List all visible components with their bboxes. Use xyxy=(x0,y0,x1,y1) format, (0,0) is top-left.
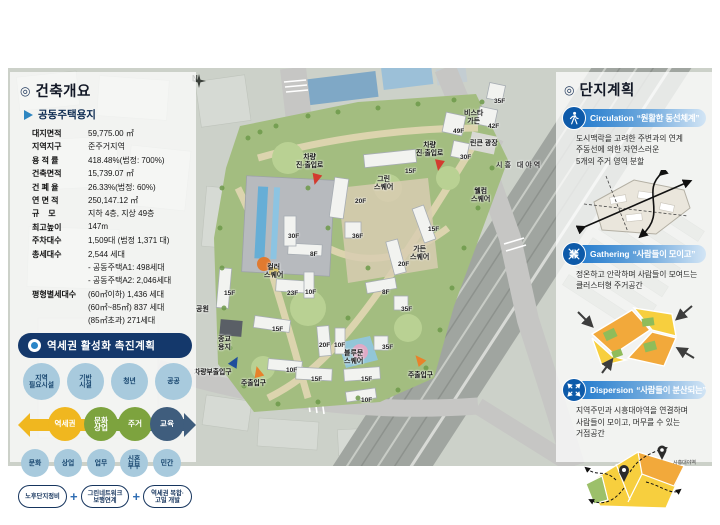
floor-label: 15F xyxy=(224,290,235,297)
floor-label: 30F xyxy=(460,154,471,161)
keyword-bubble: 상업 xyxy=(54,449,82,477)
row-label xyxy=(32,275,88,286)
flow-step: 교육 xyxy=(150,407,184,441)
floor-label: 36F xyxy=(352,233,363,240)
keyword-bubble: 지역 필요시설 xyxy=(23,363,60,400)
slide: N 49F42F35F30F15F20F36F30F8F15F20F15F23F… xyxy=(0,0,720,525)
place-label: 블루문 스퀘어 xyxy=(344,350,363,366)
floor-label: 20F xyxy=(319,342,330,349)
row-value: (60㎡~85㎡) 837 세대 xyxy=(88,302,192,313)
complex-plan-panel: ◎ 단지계획 Circulation “원활한 동선체계” 도시맥락을 고려한 … xyxy=(556,72,712,462)
row-label: 지역지구 xyxy=(32,141,88,152)
triangle-bullet-icon xyxy=(24,110,33,120)
row-label: 대지면적 xyxy=(32,128,88,139)
table-row: 용 적 률 418.48%(법정: 700%) xyxy=(32,155,192,166)
circulation-text: 도시맥락을 고려한 주변과의 연계 주동선에 의한 자연스러운 5개의 주거 영… xyxy=(576,133,706,167)
circulation-diagram xyxy=(572,170,698,238)
entrance-label: 차량부출입구 xyxy=(194,369,232,377)
floor-label: 42F xyxy=(488,123,499,130)
floor-label: 30F xyxy=(288,233,299,240)
gathering-pill: Gathering “사람들이 모이고” xyxy=(574,245,706,263)
row-label xyxy=(32,315,88,326)
row-label: 건 폐 율 xyxy=(32,182,88,193)
circulation-header: Circulation “원활한 동선체계” xyxy=(562,106,706,130)
top-bubbles: 지역 필요시설기반 시설청년공공 xyxy=(20,363,192,400)
gathering-text: 정온하고 안락하며 사람들이 모여드는 클러스터형 주거공간 xyxy=(576,269,706,292)
strategy-pill: 그린네트워크 보행연계 xyxy=(81,485,130,508)
floor-label: 20F xyxy=(355,198,366,205)
building-overview-panel: ◎ 건축개요 공동주택용지 대지면적 59,775.00 ㎡ 지역지구 준주거지… xyxy=(10,72,196,462)
dispersion-pill: Dispersion “사람들이 분산되는” xyxy=(574,381,706,399)
floor-label: 8F xyxy=(310,251,318,258)
row-label: 연 면 적 xyxy=(32,195,88,206)
row-label xyxy=(32,262,88,273)
overview-table: 대지면적 59,775.00 ㎡ 지역지구 준주거지역 용 적 률 418.48… xyxy=(18,128,192,326)
entrance-label: 주출입구 xyxy=(408,372,433,380)
table-row: 규 모 지하 4층, 지상 49층 xyxy=(32,208,192,219)
circulation-en: Circulation xyxy=(590,113,634,123)
keyword-bubble: 공공 xyxy=(155,363,192,400)
keyword-bubble: 업무 xyxy=(87,449,115,477)
table-row: - 공동주택A1: 498세대 xyxy=(32,262,192,273)
strategy-pill: 역세권 복합· 고밀 개발 xyxy=(143,485,192,508)
building-overview-header: ◎ 건축개요 xyxy=(20,80,192,101)
bottom-bubbles: 문화상업업무신혼 부부민간 xyxy=(20,449,192,477)
floor-label: 15F xyxy=(361,376,372,383)
place-label: 가든 스퀘어 xyxy=(410,246,429,262)
row-label: 평형별세대수 xyxy=(32,289,88,300)
flow-step: 주거 xyxy=(118,407,152,441)
dispersion-diagram: 시흥대야역 xyxy=(572,442,698,510)
place-label: 그린 스퀘어 xyxy=(374,176,393,192)
place-label: 시흥 대야역 xyxy=(496,162,542,170)
gathering-kr: “사람들이 모이고” xyxy=(633,248,696,260)
gathering-en: Gathering xyxy=(590,249,630,259)
text-line: 지역주민과 시흥대야역을 연결하며 xyxy=(576,405,706,416)
dispersion-text: 지역주민과 시흥대야역을 연결하며 사람들이 모이고, 머무를 수 있는 거점공… xyxy=(576,405,706,439)
plus-icon: + xyxy=(70,489,78,504)
row-label: 건축면적 xyxy=(32,168,88,179)
floor-label: 49F xyxy=(453,128,464,135)
row-label: 용 적 률 xyxy=(32,155,88,166)
row-value: 147m xyxy=(88,222,192,233)
walking-person-icon xyxy=(562,106,586,130)
table-row: 최고높이 147m xyxy=(32,222,192,233)
table-row: - 공동주택A2: 2,046세대 xyxy=(32,275,192,286)
text-line: 사람들이 모이고, 머무를 수 있는 xyxy=(576,417,706,428)
floor-label: 10F xyxy=(361,397,372,404)
row-value: (60㎡이하) 1,436 세대 xyxy=(88,289,192,300)
entrance-label: 주출입구 xyxy=(241,380,266,388)
row-value: 지하 4층, 지상 49층 xyxy=(88,208,192,219)
dispersion-en: Dispersion xyxy=(590,385,633,395)
row-label: 규 모 xyxy=(32,208,88,219)
table-row: 지역지구 준주거지역 xyxy=(32,141,192,152)
table-row: 건 폐 율 26.33%(법정: 60%) xyxy=(32,182,192,193)
text-line: 도시맥락을 고려한 주변과의 연계 xyxy=(576,133,706,144)
flow-diagram: 역세권문화 상업주거교육 xyxy=(18,403,192,447)
place-label: 비스타 가든 xyxy=(464,110,483,126)
arrow-right-tip xyxy=(184,413,196,437)
text-line: 주동선에 의한 자연스러운 xyxy=(576,144,706,155)
entrance-label: 차량 진·출입로 xyxy=(416,142,443,158)
table-row: 주차대수 1,509대 (법정 1,371 대) xyxy=(32,235,192,246)
row-value: 1,509대 (법정 1,371 대) xyxy=(88,235,192,246)
gathering-header: Gathering “사람들이 모이고” xyxy=(562,242,706,266)
vehicle-entry-arrow-red xyxy=(433,159,445,172)
table-row: 연 면 적 250,147.12 ㎡ xyxy=(32,195,192,206)
housing-site-subheader: 공동주택용지 xyxy=(24,107,192,122)
place-label: 컬러 스퀘어 xyxy=(264,264,283,280)
floor-label: 15F xyxy=(311,376,322,383)
complex-plan-header: ◎ 단지계획 xyxy=(564,79,706,100)
table-row: (85㎡초과) 271세대 xyxy=(32,315,192,326)
table-row: 건축면적 15,739.07 ㎡ xyxy=(32,168,192,179)
row-value: - 공동주택A2: 2,046세대 xyxy=(88,275,192,286)
floor-label: 15F xyxy=(428,226,439,233)
station-activation-plan: 역세권 활성화 촉진계획 지역 필요시설기반 시설청년공공 역세권문화 상업주거… xyxy=(18,333,192,508)
entrance-label: 차량 진·출입로 xyxy=(296,154,323,170)
floor-label: 10F xyxy=(305,289,316,296)
keyword-bubble: 신혼 부부 xyxy=(120,449,148,477)
row-value: 준주거지역 xyxy=(88,141,192,152)
complex-plan-title: 단지계획 xyxy=(579,79,634,100)
row-value: 26.33%(법정: 60%) xyxy=(88,182,192,193)
text-line: 거점공간 xyxy=(576,428,706,439)
row-value: 250,147.12 ㎡ xyxy=(88,195,192,206)
section-dispersion: Dispersion “사람들이 분산되는” 지역주민과 시흥대야역을 연결하며… xyxy=(562,378,706,510)
table-row: 대지면적 59,775.00 ㎡ xyxy=(32,128,192,139)
dispersion-kr: “사람들이 분산되는” xyxy=(636,384,706,396)
floor-label: 35F xyxy=(382,344,393,351)
row-value: 59,775.00 ㎡ xyxy=(88,128,192,139)
strategy-pill: 노후단지정비 xyxy=(18,485,67,508)
row-value: 2,544 세대 xyxy=(88,249,192,260)
text-line: 클러스터형 주거공간 xyxy=(576,280,706,291)
keyword-bubble: 청년 xyxy=(111,363,148,400)
keyword-bubble: 기반 시설 xyxy=(67,363,104,400)
double-circle-icon: ◎ xyxy=(564,83,574,97)
station-plan-banner: 역세권 활성화 촉진계획 xyxy=(18,333,192,358)
floor-label: 10F xyxy=(334,342,345,349)
dispersion-header: Dispersion “사람들이 분산되는” xyxy=(562,378,706,402)
table-row: 총세대수 2,544 세대 xyxy=(32,249,192,260)
row-value: (85㎡초과) 271세대 xyxy=(88,315,192,326)
table-row: (60㎡~85㎡) 837 세대 xyxy=(32,302,192,313)
dot-circle-icon xyxy=(28,339,41,352)
text-line: 5개의 주거 영역 분할 xyxy=(576,156,706,167)
double-circle-icon: ◎ xyxy=(20,84,30,98)
table-row: 평형별세대수 (60㎡이하) 1,436 세대 xyxy=(32,289,192,300)
building-overview-title: 건축개요 xyxy=(35,80,90,101)
station-plan-title: 역세권 활성화 촉진계획 xyxy=(47,338,155,353)
row-value: - 공동주택A1: 498세대 xyxy=(88,262,192,273)
station-label: 시흥대야역 xyxy=(673,459,696,466)
arrows-inward-icon xyxy=(562,242,586,266)
floor-label: 35F xyxy=(494,98,505,105)
row-value: 15,739.07 ㎡ xyxy=(88,168,192,179)
housing-site-label: 공동주택용지 xyxy=(38,107,96,122)
circulation-pill: Circulation “원활한 동선체계” xyxy=(574,109,706,127)
row-label xyxy=(32,302,88,313)
strategy-pills: 노후단지정비 + 그린네트워크 보행연계 + 역세권 복합· 고밀 개발 xyxy=(18,485,192,508)
place-label: 공원 xyxy=(196,306,209,314)
section-circulation: Circulation “원활한 동선체계” 도시맥락을 고려한 주변과의 연계… xyxy=(562,106,706,238)
floor-label: 10F xyxy=(286,367,297,374)
keyword-bubble: 문화 xyxy=(21,449,49,477)
place-label: 린큰 광장 xyxy=(470,140,498,148)
row-label: 주차대수 xyxy=(32,235,88,246)
floor-label: 15F xyxy=(272,326,283,333)
floor-label: 8F xyxy=(382,289,390,296)
floor-label: 23F xyxy=(287,290,298,297)
arrow-left-tip xyxy=(18,413,30,437)
gathering-diagram xyxy=(572,294,698,374)
plus-icon: + xyxy=(132,489,140,504)
flow-step: 문화 상업 xyxy=(84,407,118,441)
flow-step: 역세권 xyxy=(48,407,82,441)
floor-label: 15F xyxy=(405,168,416,175)
circulation-kr: “원활한 동선체계” xyxy=(637,112,700,124)
section-gathering: Gathering “사람들이 모이고” 정온하고 안락하며 사람들이 모여드는… xyxy=(562,242,706,375)
row-label: 최고높이 xyxy=(32,222,88,233)
row-value: 418.48%(법정: 700%) xyxy=(88,155,192,166)
row-label: 총세대수 xyxy=(32,249,88,260)
floor-label: 20F xyxy=(398,261,409,268)
place-label: 웰컴 스퀘어 xyxy=(471,188,490,204)
place-label: 종교 용지 xyxy=(218,336,231,352)
text-line: 정온하고 안락하며 사람들이 모여드는 xyxy=(576,269,706,280)
floor-label: 35F xyxy=(401,306,412,313)
keyword-bubble: 민간 xyxy=(153,449,181,477)
